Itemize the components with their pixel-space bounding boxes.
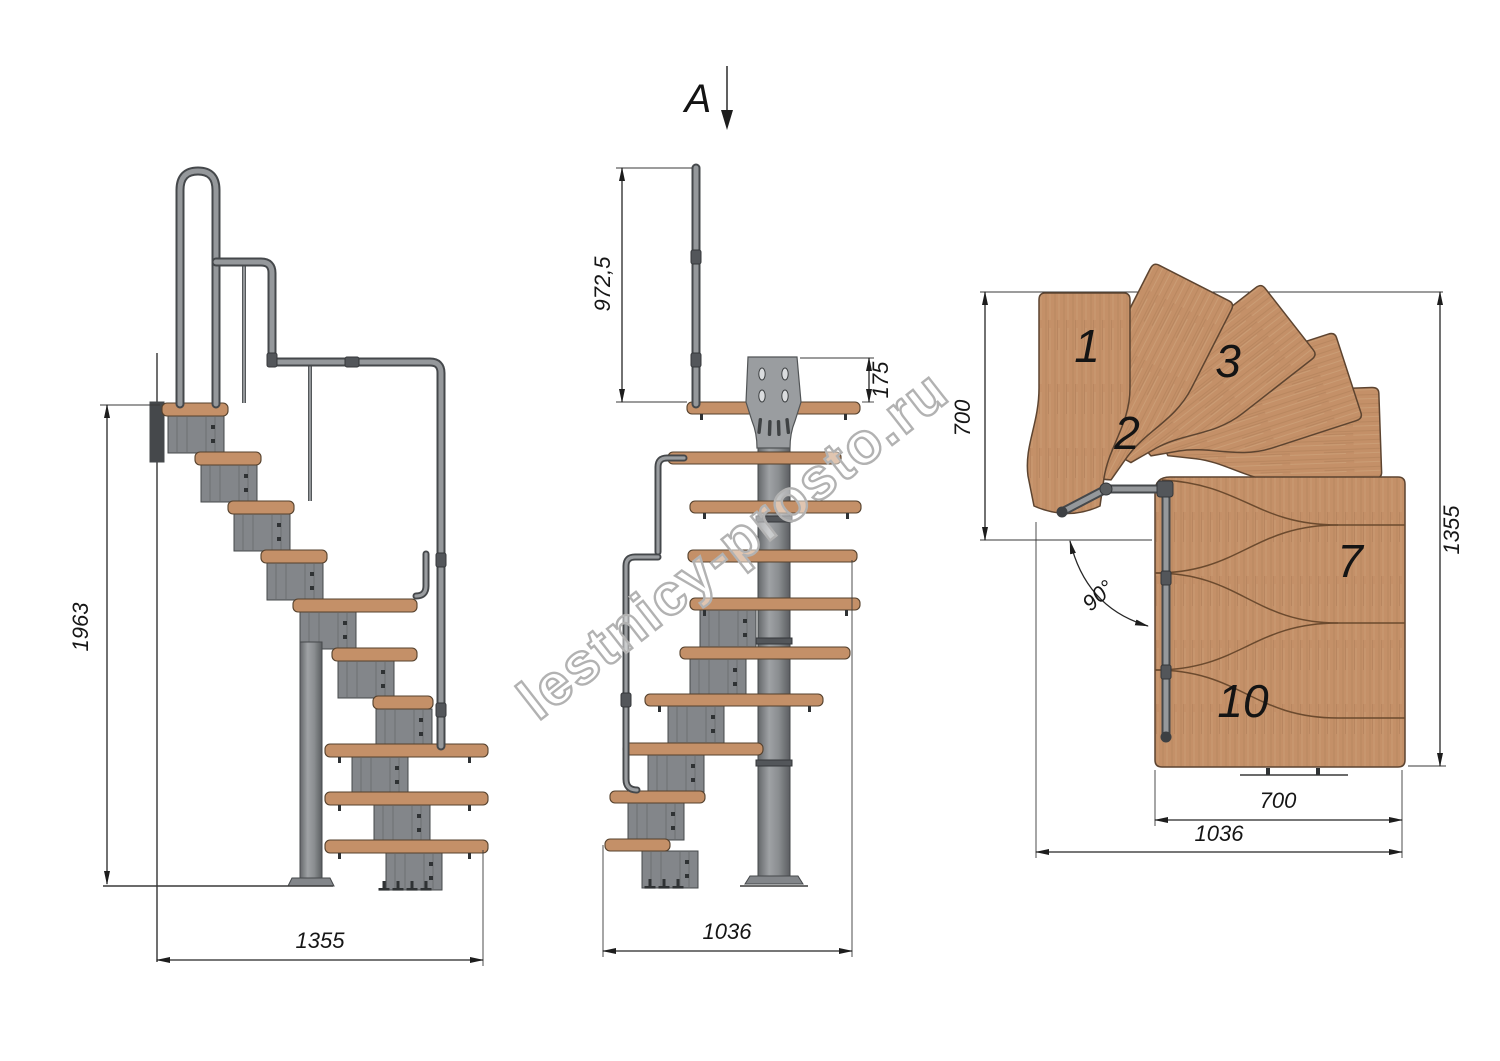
drawing-page: 1963 1355 A (0, 0, 1500, 1061)
dim-height-1963: 1963 (68, 602, 93, 652)
mounting-plate (746, 357, 801, 448)
side-elevation-view: 1963 1355 (68, 171, 488, 966)
tread-number-2: 2 (1113, 407, 1140, 459)
tread-number-3: 3 (1215, 335, 1241, 387)
handrail-loop (180, 171, 216, 404)
handrail-end-cap (1057, 507, 1068, 518)
column-base-flange-front (745, 876, 803, 884)
handrail-corner-elbow (1157, 481, 1173, 497)
view-a-arrow (721, 110, 733, 130)
dim-width-1355: 1355 (296, 928, 346, 953)
lower-flight (1155, 477, 1405, 767)
dim-front-width-1036: 1036 (703, 919, 753, 944)
tread-number-7: 7 (1337, 535, 1364, 587)
dim-depth-1355: 1355 (1439, 505, 1464, 555)
tread-number-1: 1 (1074, 320, 1100, 372)
dim-plan-width-1036: 1036 (1195, 821, 1245, 846)
column-base-flange (288, 878, 334, 886)
base-plate-glyph (1240, 768, 1348, 775)
dim-rail-972-5: 972,5 (590, 256, 615, 312)
staircase-technical-drawing: 1963 1355 A (0, 0, 1500, 1061)
view-a-label: A (683, 77, 712, 121)
dim-flight-700: 700 (1260, 788, 1297, 813)
tread-number-10: 10 (1217, 675, 1269, 727)
view-direction-marker: A (683, 66, 733, 130)
plan-view: 1 2 3 7 10 700 1355 90° 700 1036 (950, 257, 1464, 858)
winder-treads (1027, 257, 1381, 513)
